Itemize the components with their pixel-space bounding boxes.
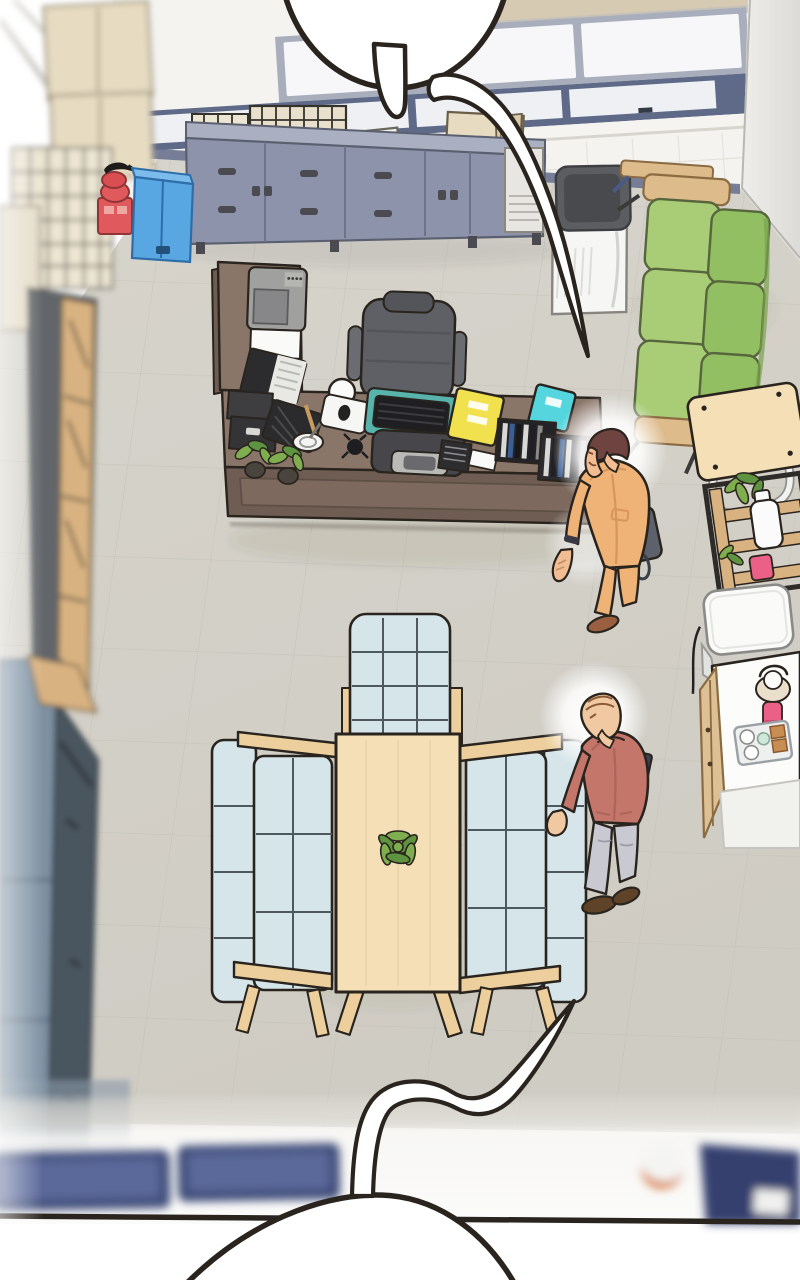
yellow-folder xyxy=(447,388,504,447)
left-edge-fade xyxy=(0,0,44,1280)
speaker-device xyxy=(438,440,472,472)
office-scene: Webtoon panel - top-down office scene Wi… xyxy=(0,0,800,1280)
blue-cabinet: Blue cabinet xyxy=(132,168,193,262)
succulent-centerpiece xyxy=(376,831,420,866)
settee-left xyxy=(212,732,344,1037)
printer xyxy=(246,267,307,359)
cup-tray xyxy=(734,720,793,765)
kettle xyxy=(756,666,790,702)
meeting-table xyxy=(336,734,462,1037)
comic-panel: Webtoon panel - top-down office scene Wi… xyxy=(0,0,800,1280)
